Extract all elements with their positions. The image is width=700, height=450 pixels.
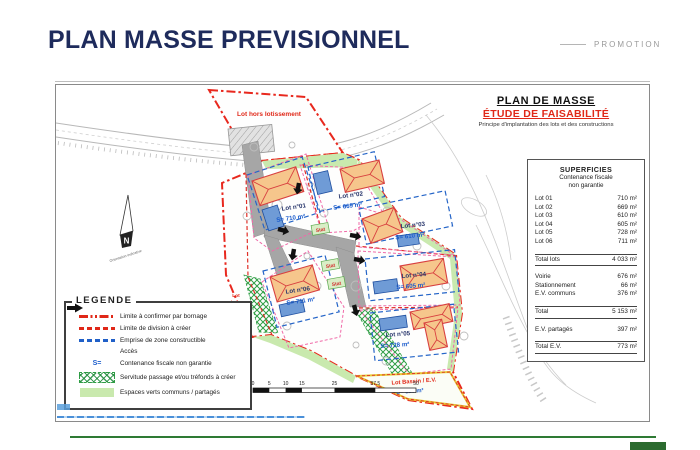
plan-title: PLAN DE MASSE [454, 95, 638, 107]
scale-tick: 0 [252, 381, 255, 387]
scale-tick: 25 [332, 381, 338, 387]
footer-green-block [630, 442, 666, 450]
ev-partages-row: E.V. partagés397 m² [535, 326, 637, 335]
servitude-swatch [79, 372, 115, 383]
superficies-subtitle2: non garantie [535, 182, 637, 190]
hors-top-label: Lot hors lotissement [237, 111, 302, 118]
table-row: Lot 04605 m² [535, 221, 637, 230]
page-title: PLAN MASSE PREVISIONNEL [48, 26, 410, 55]
hors-lotissement-top: Lot hors lotissement [209, 90, 343, 161]
scale-tick: 50 [413, 381, 419, 387]
superficies-subtitle1: Contenance fiscale [535, 174, 637, 182]
hors-west-line1: Lot [232, 293, 240, 299]
boundary-line-swatch [79, 315, 115, 318]
legend-panel: LEGENDE Limite à confirmer par bornage L… [64, 301, 252, 410]
table-row: Stationnement66 m² [535, 282, 637, 291]
plan-subtitle: ÉTUDE DE FAISABILITÉ [454, 108, 638, 120]
superficies-table: SUPERFICIES Contenance fiscale non garan… [527, 159, 645, 362]
access-arrow-icon [66, 303, 84, 313]
legend-item-servitude: Servitude passage et/ou tréfonds à créer [74, 372, 244, 383]
lot-03-name: Lot n°03 [400, 221, 426, 231]
table-row: Lot 01710 m² [535, 195, 637, 204]
legend-item-bornage: Limite à confirmer par bornage [74, 313, 244, 320]
promotion-label: PROMOTION [594, 40, 661, 49]
footer-green-rule [70, 436, 656, 438]
total-ev-row: Total E.V.773 m² [535, 341, 637, 354]
superficies-title: SUPERFICIES [535, 165, 637, 174]
constructible-line-swatch [79, 339, 115, 342]
table-row: E.V. communs376 m² [535, 290, 637, 299]
scale-tick: 5 [268, 381, 271, 387]
brand-rule [560, 44, 586, 45]
legend-item-constructible: Emprise de zone constructible [74, 337, 244, 344]
table-row: Lot 03610 m² [535, 212, 637, 221]
plan-header: PLAN DE MASSE ÉTUDE DE FAISABILITÉ Princ… [454, 95, 638, 128]
north-letter: N [124, 237, 130, 246]
legend-item-espaces-verts: Espaces verts communs / partagés [74, 388, 244, 397]
plan-sheet: Lot hors lotissement Lot [55, 84, 650, 422]
scale-tick: 15 [299, 381, 305, 387]
footer-blue-mark [57, 404, 70, 410]
north-arrow: N Orientation indicative [109, 195, 142, 263]
legend-item-acces: Accès [74, 348, 244, 355]
s-symbol: S= [93, 360, 102, 367]
promoter-brand: PROMOTION [560, 40, 661, 49]
plan-caption: Principe d'implantation des lots et des … [454, 122, 638, 128]
scale-tick: 37.5 [370, 381, 380, 387]
table-row: Voirie676 m² [535, 273, 637, 282]
total-row: Total5 153 m² [535, 306, 637, 319]
green-space-swatch [80, 388, 114, 397]
table-row: Lot 02669 m² [535, 204, 637, 213]
legend-item-contenance: S= Contenance fiscale non garantie [74, 360, 244, 367]
table-row: Lot 05728 m² [535, 229, 637, 238]
table-row: Lot 06711 m² [535, 238, 637, 247]
scale-tick: 10 [283, 381, 289, 387]
footer-blue-text-line [57, 416, 305, 418]
division-line-swatch [79, 327, 115, 330]
legend-item-division: Limite de division à créer [74, 325, 244, 332]
total-lots-row: Total lots4 033 m² [535, 254, 637, 267]
north-caption: Orientation indicative [109, 249, 142, 263]
